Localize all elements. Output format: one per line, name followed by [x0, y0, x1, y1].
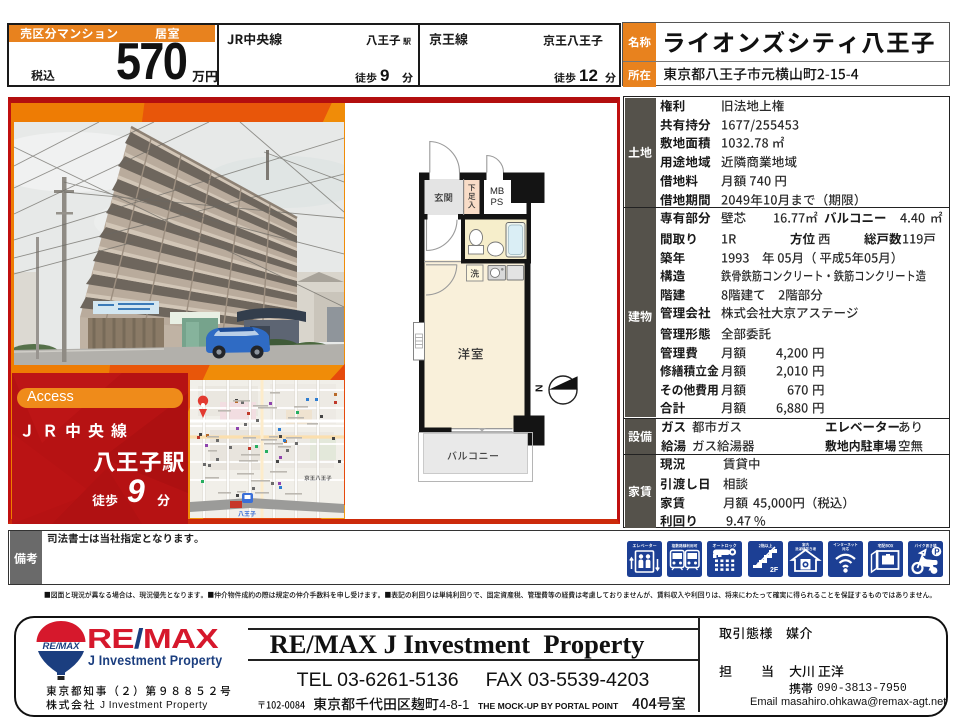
svg-text:P: P — [935, 547, 941, 556]
svg-text:2F: 2F — [770, 567, 779, 574]
svg-text:MB: MB — [490, 186, 504, 197]
svg-text:N: N — [533, 385, 545, 393]
svg-text:PS: PS — [491, 197, 504, 208]
svg-text:RE/MAX: RE/MAX — [43, 641, 81, 652]
